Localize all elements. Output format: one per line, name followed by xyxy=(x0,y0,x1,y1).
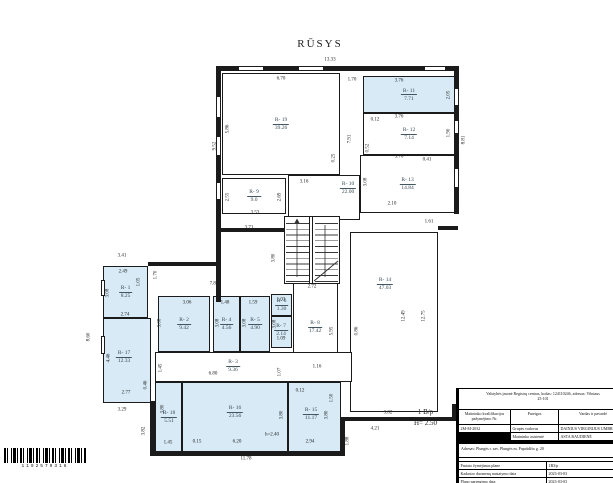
barcode-digits: 1192579316 xyxy=(4,464,86,469)
info-label: Kadastro duomenų nustatymo data xyxy=(459,470,547,477)
dimension-label: 3.82 xyxy=(142,427,147,436)
room-area: 9.42 xyxy=(177,325,191,332)
dimension-label: 3.06 xyxy=(183,301,192,306)
window-mark xyxy=(216,182,221,200)
room-number: R- 12 xyxy=(401,127,417,135)
room-label: R- 18.25 xyxy=(119,285,133,299)
building-height-label: 1 B/p H= 2.50 xyxy=(414,408,437,427)
dimension-label: 0.41 xyxy=(423,158,432,163)
room-area: 7.71 xyxy=(401,95,417,102)
room-number: R- 14 xyxy=(377,277,393,285)
dimension-label: 3.08 xyxy=(106,289,111,298)
dimension-label: 1.03 xyxy=(277,298,286,303)
wall-segment xyxy=(150,401,155,454)
room-r-3 xyxy=(155,352,352,382)
dimension-label: 1.45 xyxy=(164,441,173,446)
dimension-label: 1.48 xyxy=(221,301,230,306)
room-label: R- 1511.17 xyxy=(303,407,319,421)
dimension-label: 6.80 xyxy=(209,372,218,377)
registry-header: Valstybės įmonė Registrų centras, kodas:… xyxy=(459,389,613,410)
room-r-14 xyxy=(350,232,438,412)
room-area: 4.56 xyxy=(220,325,234,332)
dimension-label: 0.46 xyxy=(144,381,149,390)
dimension-label: 1.88 xyxy=(346,437,351,446)
window-mark xyxy=(101,336,105,354)
dimension-label: 3.80 xyxy=(272,254,277,263)
dimension-label: 3.08 xyxy=(158,319,163,328)
room-area: 11.17 xyxy=(303,415,319,422)
dimension-label: 3.08 xyxy=(243,319,248,328)
table-row: Matininko asistentė ASTA RAUDIENĖ xyxy=(459,433,613,441)
dimension-label: 3.53 xyxy=(251,211,260,216)
room-area: 7.14 xyxy=(401,135,417,142)
room-label: R- 1022.00 xyxy=(340,181,356,195)
dimension-label: 13.33 xyxy=(324,58,335,63)
window-mark xyxy=(454,88,459,106)
wall-segment xyxy=(438,226,458,230)
room-area: 22.00 xyxy=(340,189,356,196)
info-value: 1B3/p xyxy=(547,462,613,469)
dimension-label: 1.16 xyxy=(313,365,322,370)
dimension-label: 1.09 xyxy=(277,337,286,342)
dimension-label: 1.59 xyxy=(249,301,258,306)
room-label: R- 817.42 xyxy=(308,320,322,334)
dimension-label: 2.72 xyxy=(308,285,317,290)
room-number: R- 4 xyxy=(220,317,234,325)
registry-line2: 25-101 xyxy=(537,396,548,401)
dimension-label: 6.70 xyxy=(277,77,286,82)
room-label: R- 29.42 xyxy=(177,317,191,331)
dimension-label: 3.41 xyxy=(118,254,127,259)
barcode: 1192579316 xyxy=(4,448,86,469)
wall-segment xyxy=(150,451,345,456)
empty-cell xyxy=(459,433,511,440)
dimension-label: 0.25 xyxy=(332,154,337,163)
dimension-label: 11.78 xyxy=(240,457,251,462)
dimension-label: 5.86 xyxy=(226,125,231,134)
dimension-label: 4.46 xyxy=(107,354,112,363)
room-number: R- 10 xyxy=(340,181,356,189)
window-mark xyxy=(454,120,459,134)
wall-segment xyxy=(216,212,221,302)
object-address: Adresas: Plungės r. sav. Plungės m. Papr… xyxy=(459,444,613,458)
table-row: Pastato žymėjimas plane 1B3/p xyxy=(459,462,613,470)
room-area: 12.33 xyxy=(116,358,132,365)
dimension-label: 3.08 xyxy=(273,320,278,329)
room-label: R- 39.36 xyxy=(226,359,240,373)
dimension-label: 12.49 xyxy=(402,310,407,321)
dimension-label: 1.50 xyxy=(330,394,335,403)
dimension-label: 8.81 xyxy=(462,136,467,145)
dimension-label: 3.71 xyxy=(245,226,254,231)
dimension-label: 2.49 xyxy=(119,270,128,275)
dimension-label: 0.15 xyxy=(193,440,202,445)
room-label: R- 54.90 xyxy=(248,317,262,331)
window-mark xyxy=(216,96,221,118)
info-label: Pastato žymėjimas plane xyxy=(459,462,547,469)
col-header-qualification: Matininko kvalifikacijos pažymėjimo Nr. xyxy=(459,410,511,424)
room-area: 1.30 xyxy=(275,306,289,313)
dimension-label: 3.76 xyxy=(395,155,404,160)
room-number: R- 16 xyxy=(227,405,243,413)
room-number: R- 13 xyxy=(399,177,415,185)
dimension-label: 1.70 xyxy=(154,271,159,280)
room-number: R- 3 xyxy=(226,359,240,367)
person-name: DAINIUS VIRGINIJUS UMBR xyxy=(559,425,613,432)
wall-segment xyxy=(344,417,457,421)
room-label: R- 1712.33 xyxy=(116,350,132,364)
building-label-line1: 1 B/p xyxy=(414,408,437,418)
dimension-label: 7.86 xyxy=(210,282,219,287)
room-area: 14.84 xyxy=(399,185,415,192)
dimension-label: 0.86 xyxy=(355,327,360,336)
dimension-label: h=2.40 xyxy=(265,433,279,438)
room-area: 23.56 xyxy=(227,413,243,420)
wall-segment xyxy=(148,262,220,266)
room-label: R- 99.0 xyxy=(247,189,261,203)
col-header-position: Pareigos xyxy=(511,410,559,424)
dimension-label: 1.61 xyxy=(425,220,434,225)
dimension-label: 12.75 xyxy=(422,310,427,321)
dimension-label: 3.08 xyxy=(364,178,369,187)
room-label: R- 1447.03 xyxy=(377,277,393,291)
room-number: R- 2 xyxy=(177,317,191,325)
dimension-label: 3.82 xyxy=(384,411,393,416)
table-row: Kadastro duomenų nustatymo data 2023-03-… xyxy=(459,470,613,478)
position: Matininko asistentė xyxy=(511,433,559,440)
window-mark xyxy=(298,66,324,71)
window-mark xyxy=(101,280,105,296)
building-label-line2: H= 2.50 xyxy=(414,418,437,427)
room-area: 5.51 xyxy=(161,418,177,425)
dimension-label: 3.80 xyxy=(280,411,285,420)
dimension-label: 0.52 xyxy=(366,144,371,153)
room-label: R- 1314.84 xyxy=(399,177,415,191)
dimension-label: 2.94 xyxy=(306,440,315,445)
dimension-label: 8.60 xyxy=(87,333,92,342)
room-number: R- 15 xyxy=(303,407,319,415)
dimension-label: 0.12 xyxy=(371,118,380,123)
room-number: R- 9 xyxy=(247,189,261,197)
room-label: R- 127.14 xyxy=(401,127,417,141)
dimension-label: 3.76 xyxy=(395,115,404,120)
scanned-floor-plan-page: RŪSYS R- 1939.26R- 99.0R- 1022.00R- 117.… xyxy=(0,0,613,483)
stair-guides xyxy=(285,217,341,285)
info-value: 2023-03-03 xyxy=(547,478,613,483)
room-area: 47.03 xyxy=(377,285,393,292)
window-mark xyxy=(238,66,264,71)
dimension-label: 4.21 xyxy=(371,427,380,432)
room-number: R- 5 xyxy=(248,317,262,325)
info-value: 2023-03-03 xyxy=(547,470,613,477)
room-number: R- 19 xyxy=(273,117,289,125)
dimension-label: 1.07 xyxy=(278,368,283,377)
room-area: 39.26 xyxy=(273,125,289,132)
room-label: R- 1939.26 xyxy=(273,117,289,131)
title-block: Valstybės įmonė Registrų centras, kodas:… xyxy=(456,388,613,483)
room-label: R- 117.71 xyxy=(401,88,417,102)
dimension-label: 7.91 xyxy=(348,135,353,144)
info-label: Plano parengimo data xyxy=(459,478,547,483)
room-area: 9.36 xyxy=(226,367,240,374)
table-row: Plano parengimo data 2023-03-03 xyxy=(459,478,613,483)
plan-title: RŪSYS xyxy=(288,38,352,50)
position: Grupės vadovas xyxy=(511,425,559,432)
dimension-label: 3.76 xyxy=(395,79,404,84)
dimension-label: 3.80 xyxy=(161,405,166,414)
dimension-label: 9.52 xyxy=(213,142,218,151)
dimension-label: 1.45 xyxy=(159,364,164,373)
dimension-label: 3.29 xyxy=(118,408,127,413)
dimension-label: 2.74 xyxy=(121,313,130,318)
room-area: 9.0 xyxy=(247,197,261,204)
table-row: 2M-M-2032 Grupės vadovas DAINIUS VIRGINI… xyxy=(459,425,613,433)
room-label: R- 1623.56 xyxy=(227,405,243,419)
window-mark xyxy=(454,168,459,188)
qualification-nr: 2M-M-2032 xyxy=(459,425,511,432)
dimension-label: 5.95 xyxy=(330,327,335,336)
dimension-label: 1.90 xyxy=(447,129,452,138)
staircase xyxy=(284,216,340,284)
room-number: R- 11 xyxy=(401,88,417,96)
dimension-label: 2.69 xyxy=(278,193,283,202)
room-area: 8.25 xyxy=(119,293,133,300)
title-block-column-headers: Matininko kvalifikacijos pažymėjimo Nr. … xyxy=(459,410,613,425)
dimension-label: 2.05 xyxy=(447,91,452,100)
dimension-label: 2.10 xyxy=(388,202,397,207)
window-mark xyxy=(424,66,446,71)
wall-segment xyxy=(341,417,345,455)
room-number: R- 1 xyxy=(119,285,133,293)
room-area: 17.42 xyxy=(308,328,322,335)
room-number: R- 17 xyxy=(116,350,132,358)
col-header-name: Vardas ir pavardė xyxy=(559,410,613,424)
room-number: R- 8 xyxy=(308,320,322,328)
barcode-bars xyxy=(4,448,86,463)
dimension-label: 3.08 xyxy=(216,319,221,328)
dimension-label: 6.20 xyxy=(233,440,242,445)
dimension-label: 0.12 xyxy=(296,389,305,394)
room-label: R- 44.56 xyxy=(220,317,234,331)
dimension-label: 2.77 xyxy=(122,391,131,396)
dimension-label: 1.70 xyxy=(348,78,357,83)
room-area: 4.90 xyxy=(248,325,262,332)
dimension-label: 2.55 xyxy=(226,193,231,202)
dimension-label: 3.80 xyxy=(325,411,330,420)
dimension-label: 3.16 xyxy=(300,180,309,185)
person-name: ASTA RAUDIENĖ xyxy=(559,433,613,440)
dimension-label: 1.05 xyxy=(137,278,142,287)
